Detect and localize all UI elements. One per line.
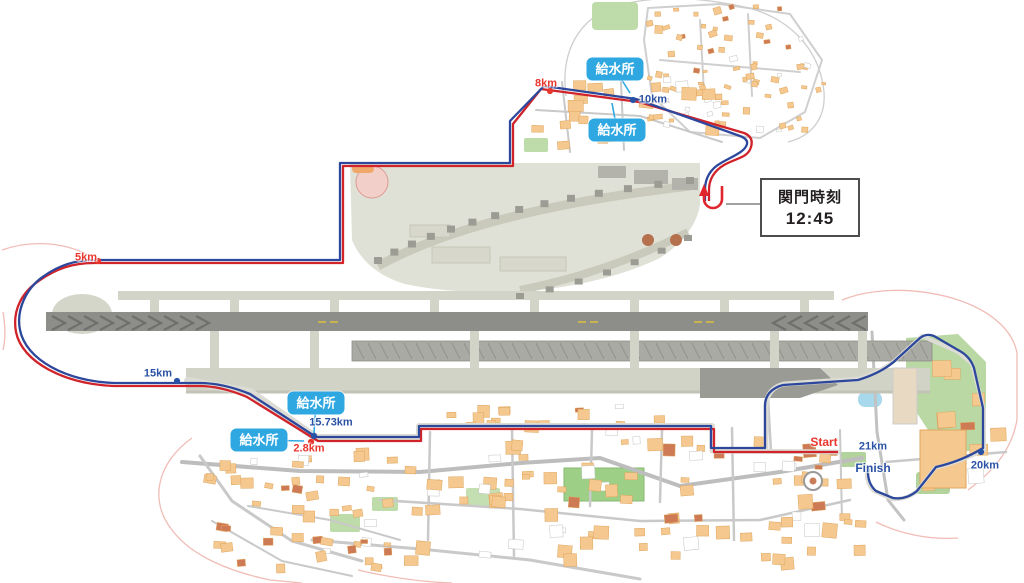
km-dot [174,378,180,384]
km-marker-21km: 21km [859,442,887,453]
km-marker-15.73km: 15.73km [309,418,352,429]
km-marker-20km: 20km [971,461,999,472]
km-marker-2.8km: 2.8km [293,444,324,455]
km-dot [311,433,317,439]
water-station-label: 給水所 [586,58,643,81]
checkpoint-time: 12:45 [769,209,851,229]
km-marker-5km: 5km [75,253,97,264]
km-marker-finish: Finish [855,462,890,474]
water-station-label: 給水所 [287,392,344,415]
checkpoint-title: 関門時刻 [769,186,851,207]
km-marker-start: Start [810,436,837,448]
course-map: 関門時刻 12:45 給水所給水所給水所給水所5km8km10km15km15.… [0,0,1024,583]
km-dot [978,449,984,455]
checkpoint-box: 関門時刻 12:45 [760,178,860,237]
km-marker-15km: 15km [144,369,172,380]
closed-strip [352,341,932,361]
water-station-label: 給水所 [588,119,645,142]
turnaround-arrow-icon [699,184,722,208]
km-dot [630,97,636,103]
map-canvas [0,0,1024,583]
km-marker-10km: 10km [639,95,667,106]
km-marker-8km: 8km [535,79,557,90]
water-station-label: 給水所 [230,429,287,452]
